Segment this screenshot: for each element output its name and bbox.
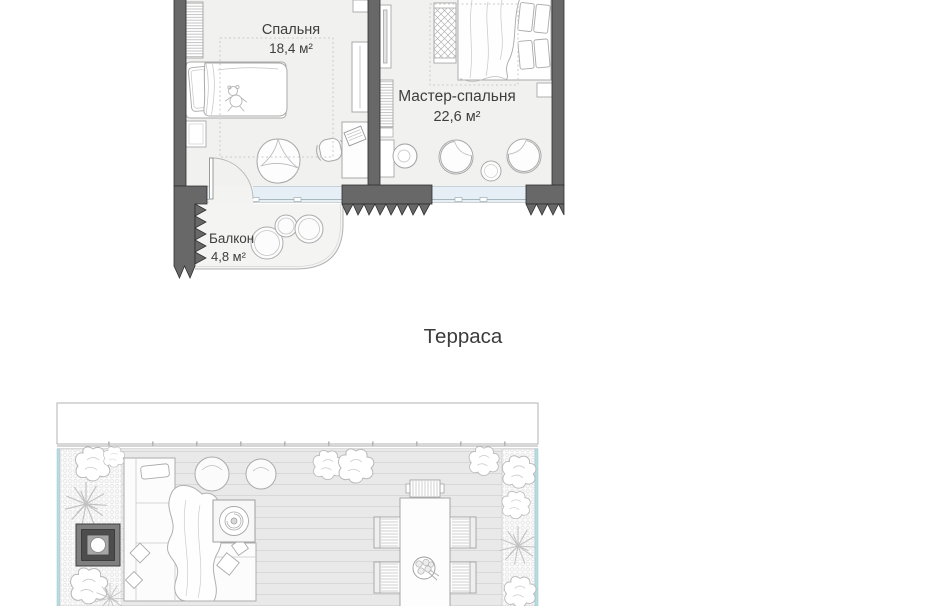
apartment-plan [174,0,564,278]
door-leaf [210,158,214,199]
nightstand [537,83,552,97]
floorplan-page: Спальня 18,4 м² Мастер-спальня 22,6 м² Б… [0,0,926,606]
balcony-area [195,204,343,269]
double-bed [458,0,552,81]
dining-table [400,498,450,606]
terrace-railing-left [57,449,60,606]
wardrobe [186,2,203,58]
dining-bench [406,480,444,497]
terrace-railing-right [535,449,538,606]
terrace-plan [57,403,538,606]
fire-table [213,500,255,542]
side-table [481,161,501,181]
vanity-table [380,140,394,177]
fire-pit [76,524,120,566]
dining-chair [374,562,400,593]
single-bed [186,62,287,118]
dining-chair [374,517,400,548]
bed-bench [434,3,456,63]
floor-plan-drawing [0,0,926,606]
beanbag-chair [257,139,300,183]
vanity-chair [393,144,417,168]
dresser [380,80,393,127]
dining-chair [450,562,476,593]
facade-band [57,403,538,444]
dining-chair [450,517,476,548]
